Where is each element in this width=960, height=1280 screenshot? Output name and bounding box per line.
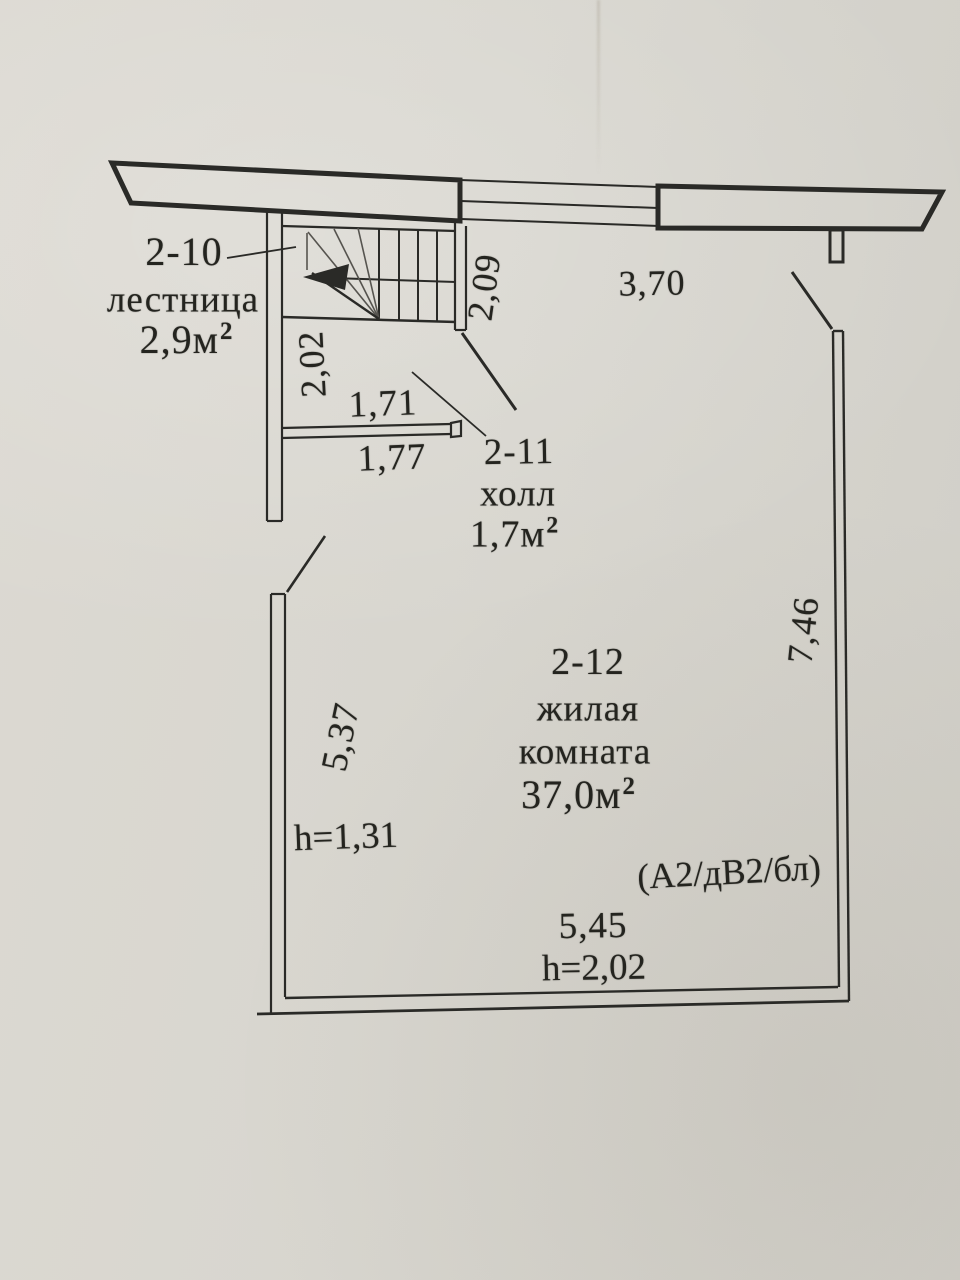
dim-right-wall: 7,46	[782, 595, 825, 665]
plan-note: (А2/дВ2/бл)	[636, 849, 821, 895]
room-2-12-name-line2: комната	[519, 734, 652, 771]
area-superscript: 2	[220, 318, 232, 345]
room-2-10-name: лестница	[107, 282, 259, 319]
dim-stair-width: 2,09	[462, 251, 507, 322]
area-value: 37,0м	[521, 772, 621, 817]
dim-partition-lower: 1,77	[357, 438, 427, 477]
room-2-11-name: холл	[480, 476, 556, 513]
dim-bottom-wall: 5,45	[558, 907, 627, 945]
room-2-10-area: 2,9м2	[140, 320, 233, 360]
dim-top-wall: 3,70	[618, 264, 686, 301]
room-2-12-area: 37,0м2	[521, 775, 635, 815]
dim-left-wall: 5,37	[316, 700, 366, 775]
area-superscript: 2	[622, 773, 634, 800]
floor-plan-photo: 2-10 лестница 2,9м2 2,09 3,70 2,02 1,71 …	[0, 0, 960, 1280]
area-value: 1,7м	[470, 513, 546, 555]
dim-height-bottom: h=2,02	[542, 949, 647, 988]
labels-layer: 2-10 лестница 2,9м2 2,09 3,70 2,02 1,71 …	[0, 0, 960, 1280]
room-2-11-area: 1,7м2	[470, 515, 558, 554]
area-superscript: 2	[546, 513, 558, 539]
room-2-12-name-line1: жилая	[537, 691, 639, 728]
dim-height-left: h=1,31	[293, 817, 398, 858]
room-2-12-number: 2-12	[551, 643, 625, 681]
dim-hall-depth: 2,02	[292, 330, 331, 399]
room-2-11-number: 2-11	[483, 433, 554, 471]
area-value: 2,9м	[140, 317, 219, 362]
dim-partition-upper: 1,71	[348, 384, 418, 423]
room-2-10-number: 2-10	[145, 232, 222, 272]
